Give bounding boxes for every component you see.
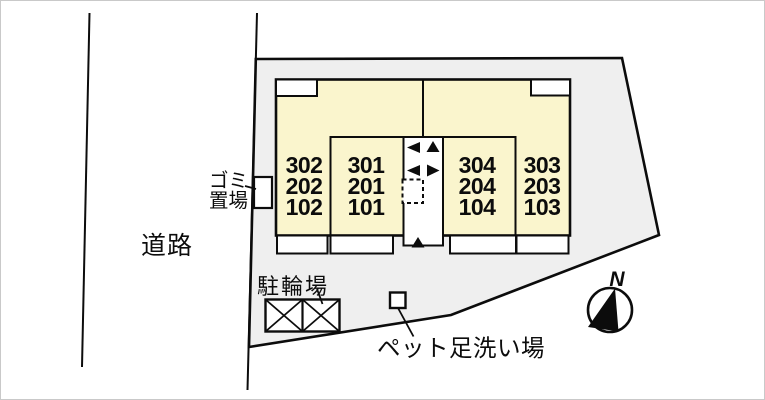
garbage-label-line2: 置場: [209, 190, 248, 212]
room-column-east: 304 204 104: [459, 155, 496, 218]
porch-2: [331, 236, 394, 254]
room-number: 103: [524, 197, 561, 218]
room-column-far-east: 303 203 103: [524, 155, 561, 218]
compass-north-label: N: [601, 268, 633, 292]
porch-3: [450, 236, 516, 254]
building-notch-top-left: [276, 80, 317, 97]
road-label: 道路: [141, 226, 193, 262]
pet-wash-box: [390, 293, 406, 309]
room-column-west: 301 201 101: [348, 155, 385, 218]
garbage-station-label: ゴミ 置場: [200, 172, 248, 211]
pet-foot-wash-label: ペット足洗い場: [377, 329, 545, 363]
room-column-far-west: 302 202 102: [286, 155, 323, 218]
garbage-station-box: [254, 177, 272, 208]
porch-1: [277, 236, 328, 254]
building-notch-top-right: [531, 80, 570, 96]
porch-4: [517, 236, 569, 254]
bicycle-parking-label: 駐輪場: [257, 269, 329, 301]
room-number: 102: [286, 197, 323, 218]
room-number: 101: [348, 197, 385, 218]
road-edge-line: [82, 13, 90, 367]
room-number: 104: [459, 197, 496, 218]
site-plan: 道路 ゴミ 置場 駐輪場 ペット足洗い場 N 302 202 102 301 2…: [0, 0, 765, 400]
corridor-dashed-box: [403, 180, 424, 204]
